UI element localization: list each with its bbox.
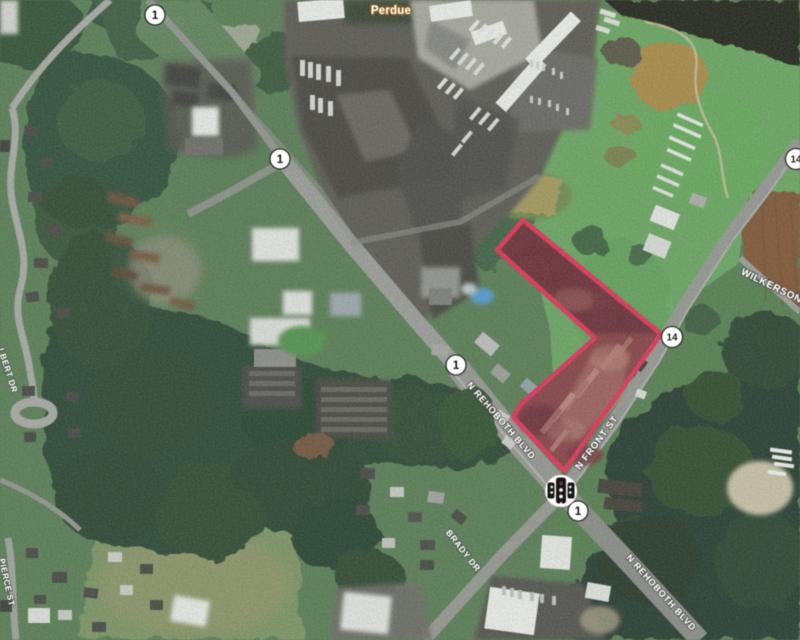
svg-text:1: 1	[575, 504, 582, 518]
svg-text:14: 14	[666, 333, 678, 344]
svg-text:1: 1	[453, 358, 460, 372]
svg-text:1: 1	[152, 8, 159, 22]
svg-text:Perdue: Perdue	[371, 5, 411, 17]
svg-text:14: 14	[790, 155, 800, 166]
svg-text:1: 1	[277, 152, 284, 166]
